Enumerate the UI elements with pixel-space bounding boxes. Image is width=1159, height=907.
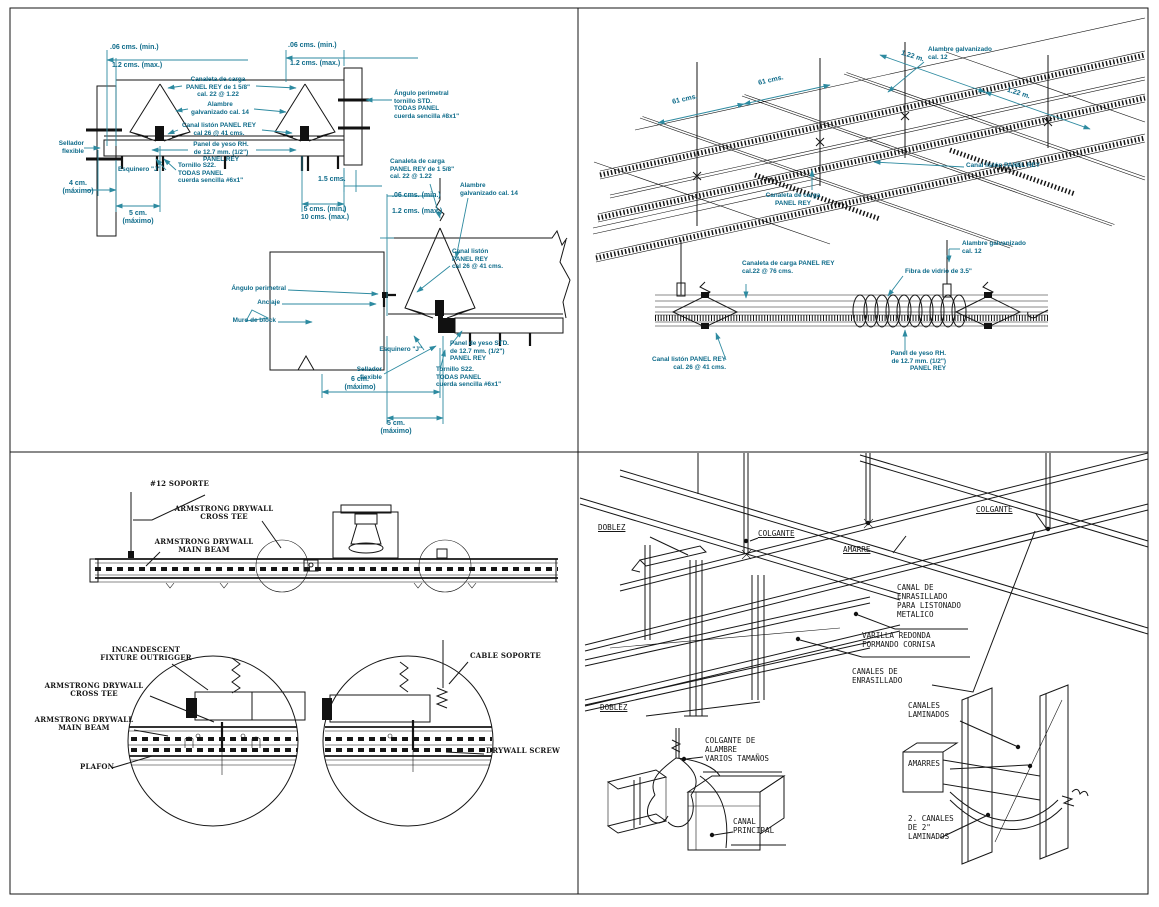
tr-grid-isometric (593, 18, 1145, 360)
label-panel-yeso: Panel de yeso RH. de 12.7 mm. (1/2") PAN… (186, 141, 256, 164)
label-drywall-screw: DRYWALL SCREW (486, 747, 582, 755)
label-canal-liston: Canal listón PANEL REY cal 26 @ 41 cms. (176, 122, 262, 137)
label-alambre-galv-seccion: Alambre galvanizado cal. 12 (962, 240, 1050, 255)
label-alambre-galvanizado: Alambre galvanizado cal. 14 (188, 101, 252, 116)
ceiling-details-sheet: .06 cms. (min.) 1.2 cms. (max.) .06 cms.… (0, 0, 1159, 907)
label-plafon: PLAFON (80, 763, 130, 771)
label-angulo-perimetral: Ángulo perimetral (218, 285, 286, 293)
sheet-borders (10, 8, 1148, 894)
dim-min-left: .06 cms. (min.) (110, 44, 180, 52)
label-cable-soporte: CABLE SOPORTE (470, 652, 566, 660)
br-channel-isometric (580, 453, 1148, 864)
label-canaleta-carga: Canaleta de carga PANEL REY de 1 5/8" ca… (182, 76, 254, 99)
label-fibra-vidrio: Fibra de vidrio de 3.5" (905, 268, 1005, 276)
label-canales-laminados: CANALES LAMINADOS (908, 702, 984, 720)
label-muro-block: Muro de block (214, 317, 276, 325)
label-canaleta-carga-2: Canaleta de carga PANEL REY de 1 5/8" ca… (390, 158, 476, 181)
dim-5cm-2: 5 cm. (máximo) (368, 420, 424, 437)
label-cross-tee-detail: ARMSTRONG DRYWALL CROSS TEE (36, 682, 152, 699)
label-colgante-alambre: COLGANTE DE ALAMBRE VARIOS TAMAÑOS (705, 737, 805, 764)
label-sellador: Sellador flexible (42, 140, 84, 155)
dim-4cm: 4 cm. (máximo) (52, 180, 104, 197)
label-anclaje: Anclaje (238, 299, 280, 307)
label-amarre: AMARRE (843, 546, 895, 555)
dim-max-2: 1.2 cms. (max.) (392, 208, 464, 216)
dim-min-right: .06 cms. (min.) (288, 42, 358, 50)
label-varilla-redonda: VARILLA REDONDA FORMANDO CORNISA (862, 632, 980, 650)
cad-linework (0, 0, 1159, 907)
label-tornillo-2: Tornillo S22. TODAS PANEL cuerda sencill… (436, 366, 520, 389)
label-canal-principal: CANAL PRINCIPAL (733, 818, 803, 836)
label-canal-liston-2: Canal listón PANEL REY cal 26 @ 41 cms. (452, 248, 528, 271)
label-tornillo: Tornillo S22. TODAS PANEL cuerda sencill… (178, 162, 262, 185)
label-cross-tee-top: ARMSTRONG DRYWALL CROSS TEE (168, 505, 280, 522)
label-colgante-1: COLGANTE (758, 530, 822, 539)
dim-5cm: 5 cm. (máximo) (112, 210, 164, 227)
dim-min-2: .06 cms. (min.) (392, 192, 464, 200)
label-doblez-2: DOBLEZ (600, 704, 650, 713)
label-canal-liston-seccion: Canal listón PANEL REY cal. 26 @ 41 cms. (628, 356, 726, 371)
dim-max-left: 1.2 cms. (max.) (112, 62, 182, 70)
label-panel-yeso-seccion: Panel de yeso RH. de 12.7 mm. (1/2") PAN… (868, 350, 946, 373)
label-12-soporte: #12 SOPORTE (150, 480, 230, 488)
label-esquinero-j-2: Esquinero "J" (372, 346, 422, 354)
label-esquinero-j: Esquinero "J" (118, 166, 166, 174)
label-colgante-2: COLGANTE (976, 506, 1040, 515)
label-canales-enrasillado: CANALES DE ENRASILLADO (852, 668, 942, 686)
label-angulo-perimetral-tornillo: Ángulo perimetral tornillo STD. TODAS PA… (394, 90, 482, 120)
label-2-canales-laminados: 2. CANALES DE 2" LAMINADOS (908, 815, 984, 842)
label-alambre-galv-iso: Alambre galvanizado cal. 12 (928, 46, 1014, 61)
label-canal-enrasillado: CANAL DE ENRASILLADO PARA LISTONADO META… (897, 584, 997, 620)
dim-5-10cms: 5 cms. (min.) 10 cms. (max.) (292, 206, 358, 223)
label-incandescent-fixture: INCANDESCENT FIXTURE OUTRIGGER (88, 646, 204, 663)
label-main-beam-detail: ARMSTRONG DRYWALL MAIN BEAM (26, 716, 142, 733)
label-amarres: AMARRES (908, 760, 968, 769)
label-alambre-galvanizado-2: Alambre galvanizado cal. 14 (460, 182, 526, 197)
dim-max-right: 1.2 cms. (max.) (290, 60, 360, 68)
label-main-beam-top: ARMSTRONG DRYWALL MAIN BEAM (148, 538, 260, 555)
label-canaleta-iso: Canaleta de carga PANEL REY (756, 192, 830, 207)
label-canaleta-seccion: Canaleta de carga PANEL REY cal.22 @ 76 … (742, 260, 866, 275)
label-doblez-1: DOBLEZ (598, 524, 648, 533)
label-panel-yeso-2: Panel de yeso STD. de 12.7 mm. (1/2") PA… (450, 340, 528, 363)
dim-15cms: 1.5 cms. (318, 176, 360, 184)
label-canal-liston-iso: Canal listón PANEL REY (966, 162, 1066, 170)
dim-6cm: 6 cm. (máximo) (332, 376, 388, 393)
